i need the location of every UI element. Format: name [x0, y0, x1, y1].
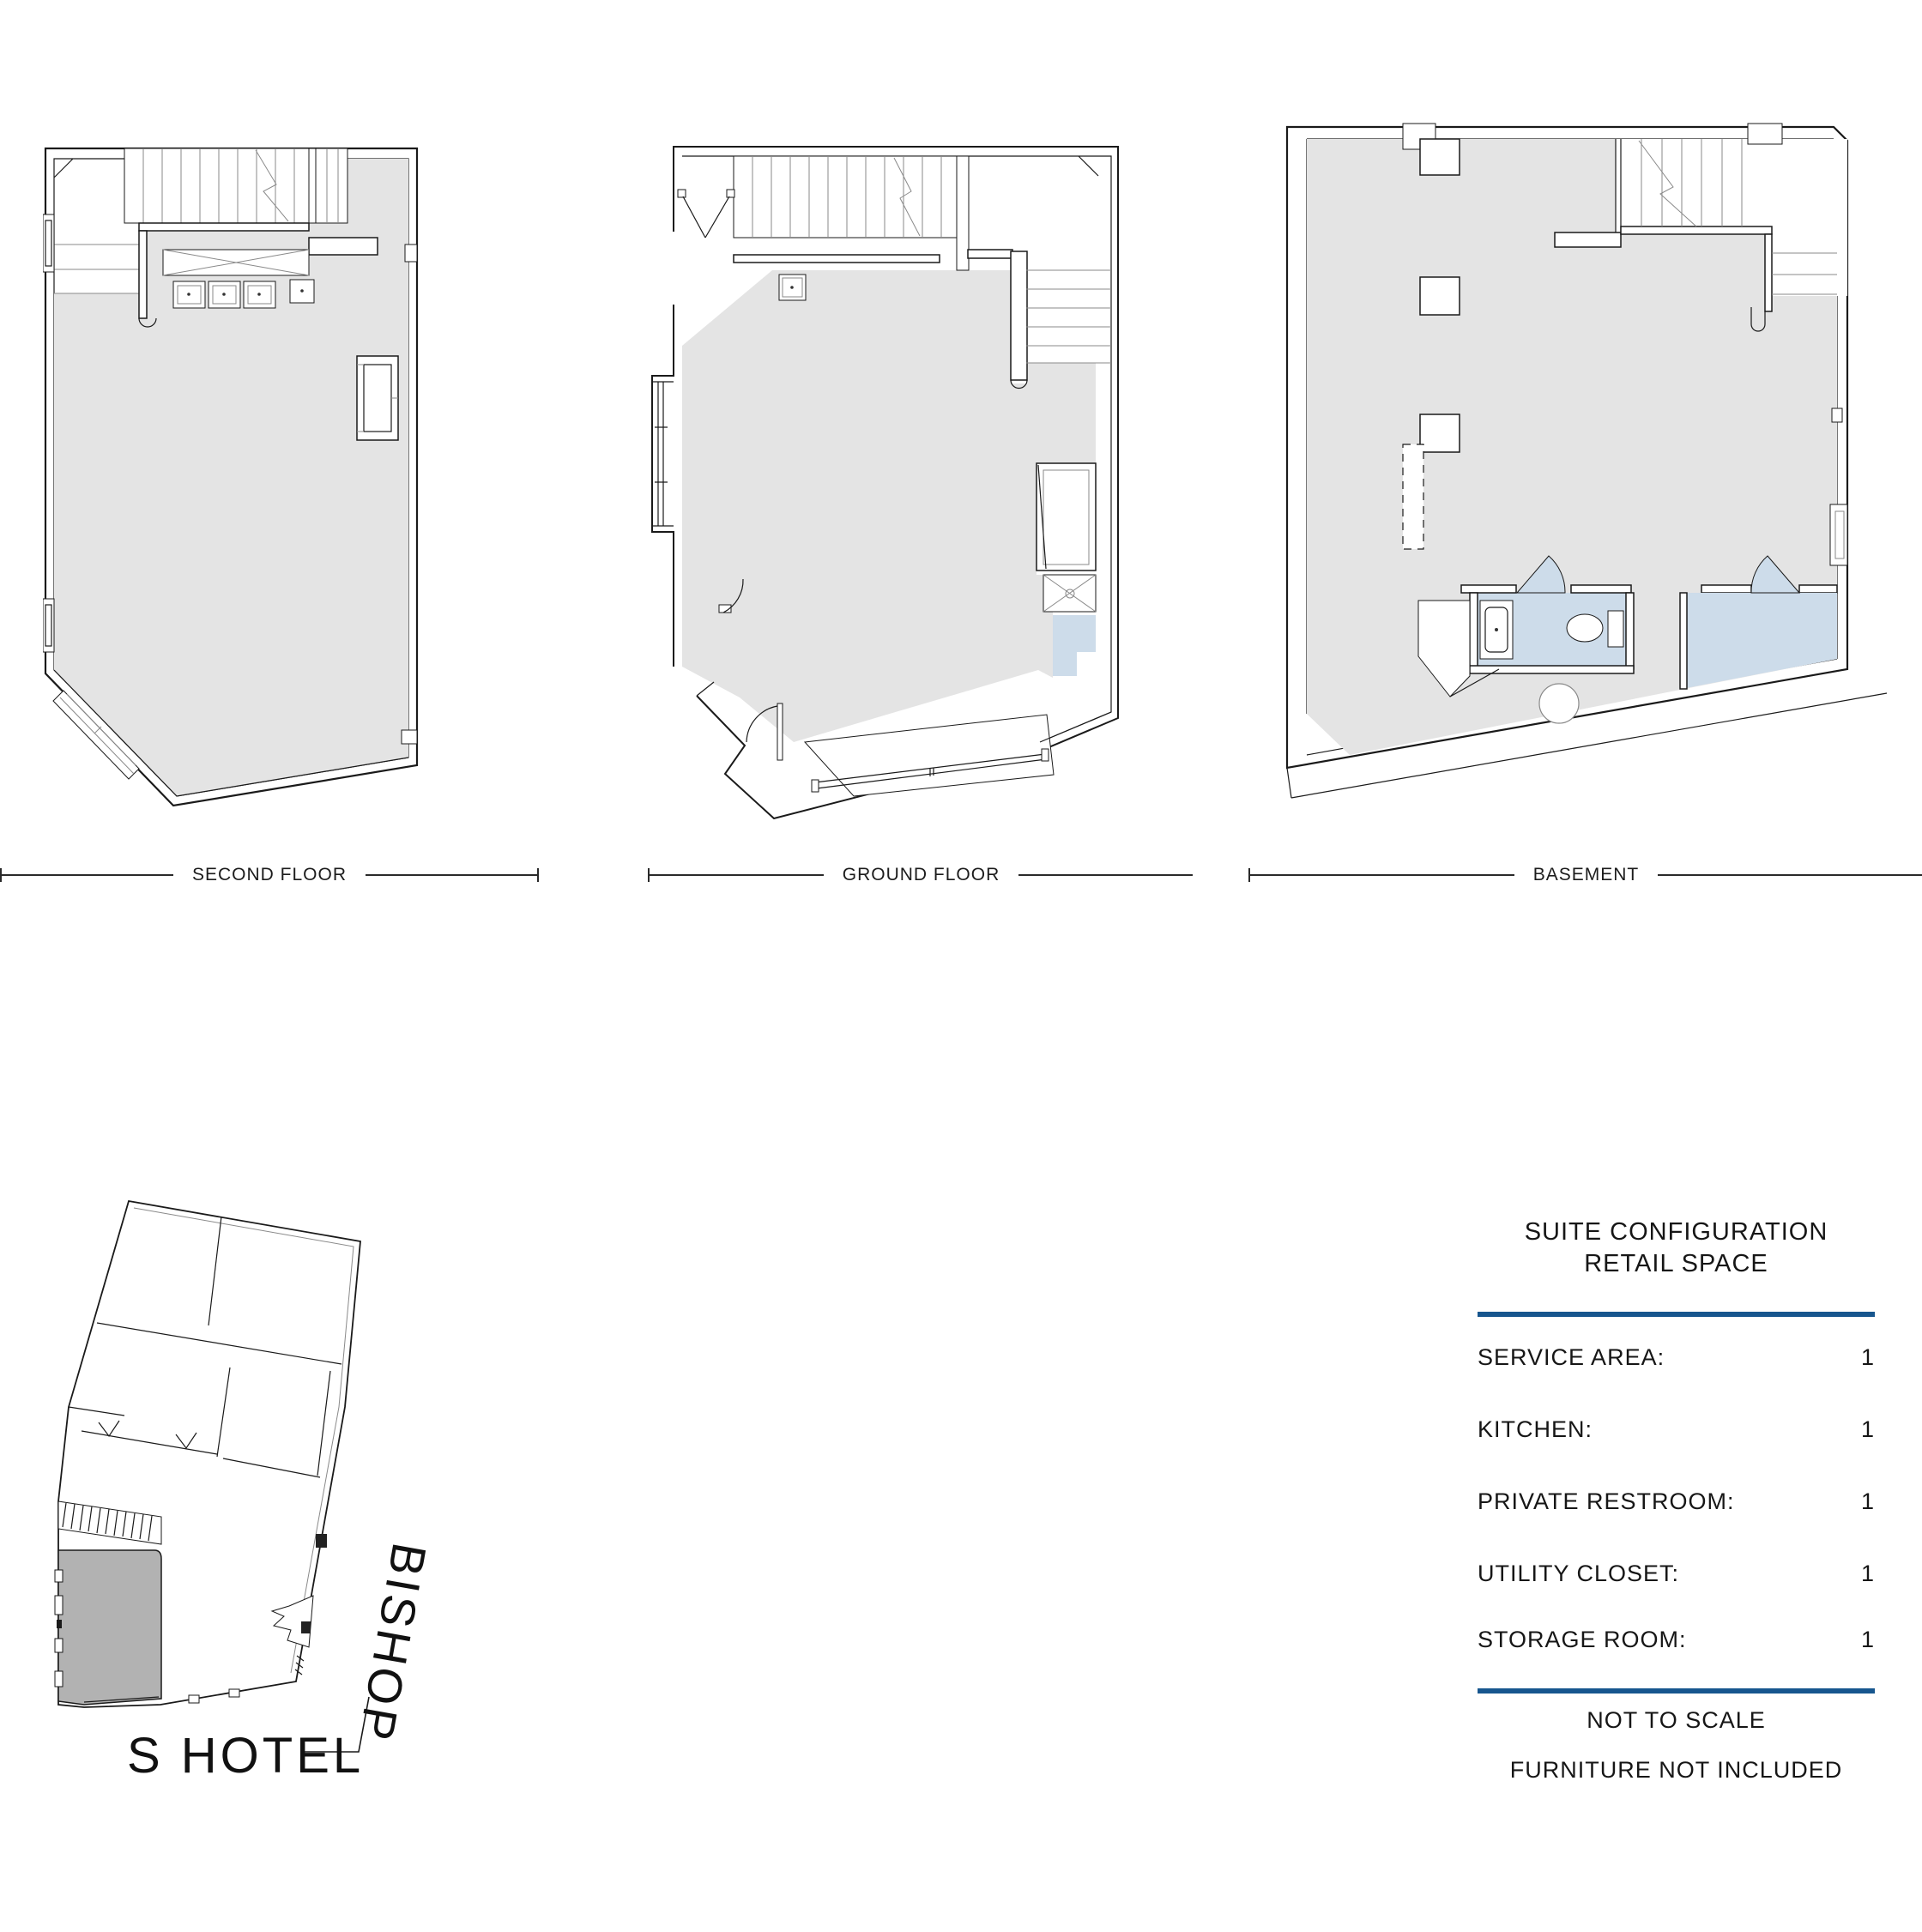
caption-line: [2, 874, 173, 876]
legend-row: UTILITY CLOSET: 1: [1478, 1561, 1875, 1587]
legend-row-label: PRIVATE RESTROOM:: [1478, 1488, 1735, 1515]
legend-row: PRIVATE RESTROOM: 1: [1478, 1488, 1875, 1515]
service-counter: [163, 250, 309, 275]
legend-row-label: SERVICE AREA:: [1478, 1344, 1665, 1371]
caption-basement: BASEMENT: [1248, 866, 1922, 884]
left-window-lower: [43, 599, 54, 652]
ground-floor-plan: [644, 142, 1158, 819]
legend-row-value: 1: [1861, 1416, 1875, 1443]
right-wall-notch-bottom: [402, 730, 417, 744]
plan-label-basement: BASEMENT: [1514, 865, 1659, 885]
right-window-alcove: [357, 356, 398, 440]
basement-plan: [1274, 120, 1888, 832]
floor-box-fixture: [779, 275, 806, 300]
legend-row: KITCHEN: 1: [1478, 1416, 1875, 1443]
legend-row-value: 1: [1861, 1561, 1875, 1587]
legend-row-label: KITCHEN:: [1478, 1416, 1593, 1443]
caption-line: [1018, 874, 1193, 876]
top-wall-niche-right: [1748, 124, 1782, 144]
dashed-opening: [1403, 444, 1423, 549]
plan-label-ground-floor: GROUND FLOOR: [824, 865, 1019, 885]
retail-suite-highlight: [55, 1550, 161, 1705]
legend-title: SUITE CONFIGURATION RETAIL SPACE: [1478, 1217, 1875, 1280]
legend-row-value: 1: [1861, 1488, 1875, 1515]
legend-title-line1: SUITE CONFIGURATION: [1478, 1217, 1875, 1248]
legend-row-label: UTILITY CLOSET:: [1478, 1561, 1679, 1587]
caption-line: [366, 874, 537, 876]
right-wall-notch-top: [405, 245, 417, 262]
plan-label-second-floor: SECOND FLOOR: [173, 865, 366, 885]
caption-second-floor: SECOND FLOOR: [0, 866, 539, 884]
legend-rule-bottom: [1478, 1688, 1875, 1694]
legend-row-value: 1: [1861, 1344, 1875, 1371]
second-floor-stairs: [124, 148, 348, 223]
street-label-bishop: BISHOP: [348, 1539, 433, 1748]
second-floor-plan: [43, 142, 420, 819]
legend-rule-top: [1478, 1312, 1875, 1317]
floor-drain-circle: [1539, 684, 1579, 723]
left-window-upper: [43, 214, 54, 272]
legend-row: STORAGE ROOM: 1: [1478, 1627, 1875, 1653]
caption-line: [1250, 874, 1514, 876]
legend-note-furniture: FURNITURE NOT INCLUDED: [1469, 1757, 1883, 1784]
sink: [1480, 601, 1513, 659]
hotel-label: S HOTEL: [127, 1728, 364, 1784]
legend-row-label: STORAGE ROOM:: [1478, 1627, 1687, 1653]
legend-row: SERVICE AREA: 1: [1478, 1344, 1875, 1371]
legend-title-line2: RETAIL SPACE: [1478, 1248, 1875, 1280]
caption-line: [650, 874, 824, 876]
legend-row-value: 1: [1861, 1627, 1875, 1653]
floor-plan-sheet: { "document": { "type": "architectural-f…: [0, 0, 1922, 1932]
caption-tick: [537, 868, 539, 882]
caption-line: [1658, 874, 1922, 876]
legend-note-scale: NOT TO SCALE: [1469, 1707, 1883, 1734]
caption-ground-floor: GROUND FLOOR: [648, 866, 1193, 884]
site-key-plan: S HOTEL BISHOP: [47, 1192, 433, 1793]
